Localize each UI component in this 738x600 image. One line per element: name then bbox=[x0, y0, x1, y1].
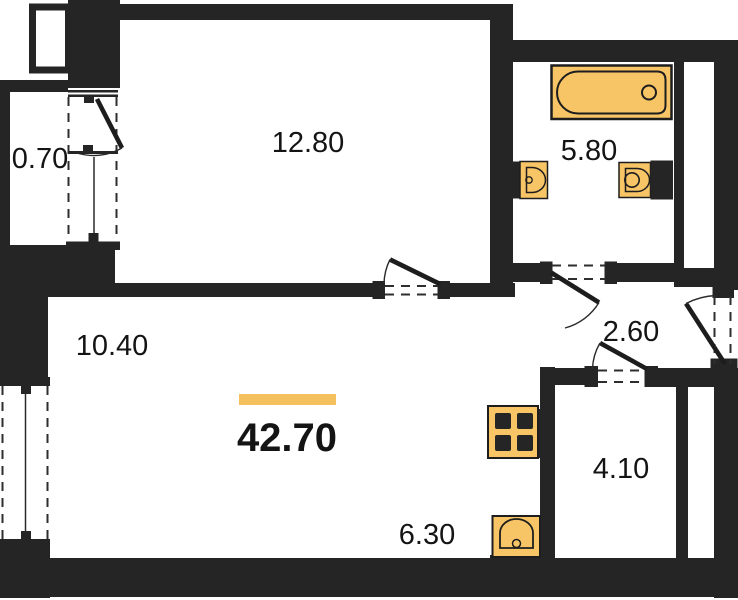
bedroom-door bbox=[384, 260, 440, 295]
wall bbox=[714, 40, 738, 290]
entrance-door bbox=[686, 296, 731, 365]
total-area-label: 42.70 bbox=[237, 416, 337, 460]
living-room-window bbox=[3, 386, 48, 539]
room-label-kitchen: 6.30 bbox=[399, 519, 455, 551]
balcony-window bbox=[66, 97, 120, 250]
wall bbox=[0, 297, 48, 381]
wall bbox=[0, 80, 68, 92]
wall bbox=[100, 4, 512, 20]
toilet-icon bbox=[619, 161, 673, 200]
wall bbox=[112, 283, 375, 297]
storage-door bbox=[593, 343, 648, 382]
wall bbox=[490, 4, 513, 297]
duct-shaft bbox=[33, 7, 69, 70]
wall bbox=[676, 368, 688, 562]
window-sill bbox=[66, 242, 120, 251]
stove-icon bbox=[488, 406, 544, 458]
room-label-storage: 4.10 bbox=[593, 453, 649, 485]
room-label-living-room: 10.40 bbox=[76, 330, 149, 362]
floor-plan: 0.70 12.80 5.80 10.40 2.60 6.30 4.10 42.… bbox=[0, 0, 738, 600]
room-label-bedroom: 12.80 bbox=[272, 127, 345, 159]
room-label-hallway: 2.60 bbox=[603, 316, 659, 348]
door-jamb bbox=[540, 262, 553, 285]
wall bbox=[0, 80, 10, 248]
balcony-door bbox=[68, 90, 122, 156]
bathroom-sink-icon bbox=[512, 162, 548, 199]
bathtub-icon bbox=[552, 66, 672, 120]
room-label-bathroom: 5.80 bbox=[561, 135, 617, 167]
wall bbox=[540, 368, 586, 385]
wall bbox=[714, 387, 738, 598]
window-sill bbox=[0, 539, 50, 548]
window-mark bbox=[89, 233, 99, 242]
wall bbox=[0, 245, 115, 297]
wall bbox=[540, 367, 555, 562]
wall bbox=[0, 558, 738, 597]
kitchen-sink-icon bbox=[490, 516, 542, 563]
window-sill bbox=[0, 377, 50, 386]
wall bbox=[513, 263, 542, 282]
wall bbox=[674, 62, 684, 268]
door-jamb bbox=[585, 366, 599, 387]
door-jamb bbox=[373, 281, 386, 299]
wall bbox=[448, 283, 515, 297]
room-label-balcony: 0.70 bbox=[12, 143, 68, 175]
bathroom-door bbox=[551, 266, 605, 329]
window-mark bbox=[21, 386, 31, 394]
wall bbox=[512, 40, 738, 62]
wall bbox=[615, 263, 684, 282]
total-area-accent-bar bbox=[239, 394, 336, 405]
